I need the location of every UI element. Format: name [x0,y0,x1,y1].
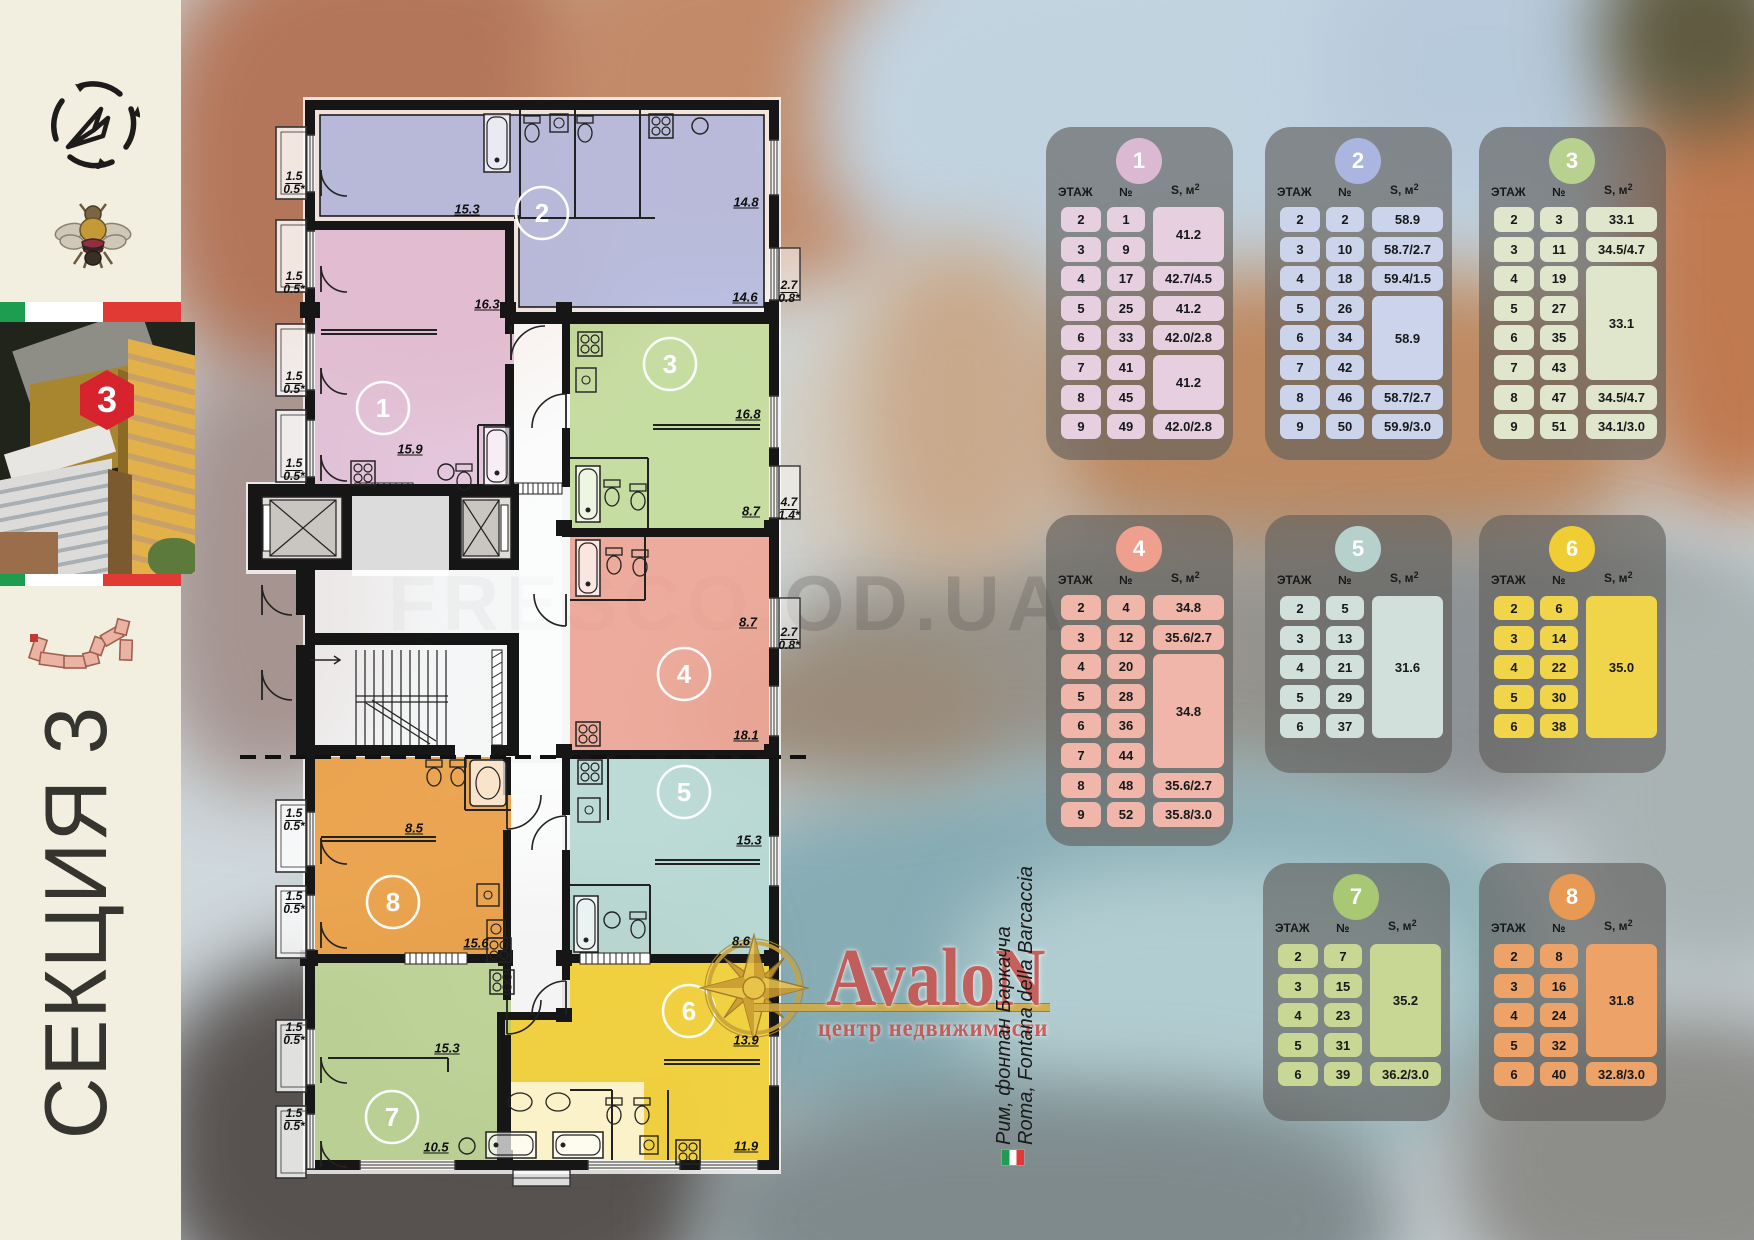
svg-text:7: 7 [385,1102,399,1132]
svg-text:2: 2 [535,198,549,228]
svg-text:5: 5 [677,777,691,807]
svg-text:8: 8 [386,887,400,917]
svg-text:3: 3 [663,349,677,379]
svg-text:1: 1 [376,393,390,423]
svg-text:4: 4 [677,659,692,689]
